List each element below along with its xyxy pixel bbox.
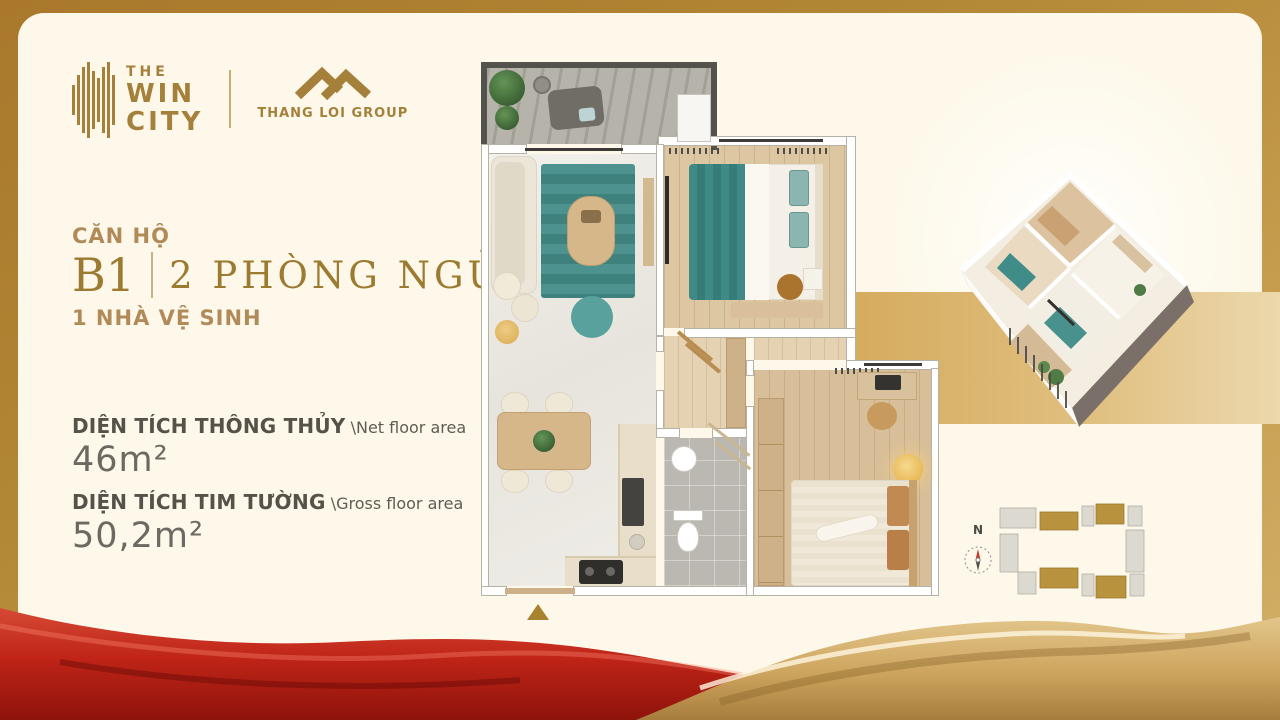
wordmark-the: THE	[126, 65, 203, 79]
logo-divider	[229, 70, 231, 128]
floor-lamp	[495, 320, 519, 344]
pouf	[571, 296, 613, 338]
balcony-plant	[495, 106, 519, 130]
gross-area-value: 50,2m²	[72, 516, 466, 556]
pillow	[789, 212, 809, 248]
pillow	[789, 170, 809, 206]
ribbon-decoration	[0, 552, 1280, 720]
unit-bedrooms: 2 PHÒNG NGỦ	[169, 257, 503, 294]
balcony-plant	[489, 70, 525, 106]
unit-code: B1	[72, 252, 135, 298]
wall	[656, 428, 680, 438]
compass-north-label: N	[973, 523, 983, 537]
wall	[746, 360, 754, 376]
unit-bathrooms: 1 NHÀ VỆ SINH	[72, 306, 503, 330]
desk-chair	[867, 402, 897, 430]
header-logos: THE WIN CITY THANG LOI GROUP	[72, 62, 408, 138]
lounge-pillow	[578, 107, 595, 122]
ac-unit	[677, 94, 711, 142]
the-win-city-logo: THE WIN CITY	[72, 62, 203, 138]
coffee-table	[567, 196, 615, 266]
toilet	[673, 510, 703, 521]
wordmark-city: CITY	[126, 109, 203, 135]
sofa-cushions	[495, 162, 525, 286]
thang-loi-wordmark: THANG LOI GROUP	[257, 106, 408, 121]
wall	[656, 336, 664, 352]
window-bedroom-1	[719, 139, 823, 142]
gross-area-label: DIỆN TÍCH TIM TƯỜNG	[72, 490, 326, 514]
area-specs: DIỆN TÍCH THÔNG THỦY \Net floor area 46m…	[72, 414, 466, 566]
curtain	[669, 148, 723, 154]
wall	[481, 62, 487, 150]
table-plant	[533, 430, 555, 452]
nightstand	[803, 268, 823, 290]
wordmark-win: WIN	[126, 81, 203, 107]
balcony-table	[533, 76, 551, 94]
tv	[665, 176, 669, 264]
gold-silk-wave	[636, 617, 1280, 720]
thang-loi-logo-mark	[295, 66, 371, 100]
lounge-chair	[547, 85, 605, 130]
floor-plan	[479, 62, 941, 602]
toilet-bowl	[677, 522, 699, 552]
window-bedroom-2	[864, 363, 922, 366]
unit-title-divider	[151, 252, 153, 298]
net-area-label: DIỆN TÍCH THÔNG THỦY	[72, 414, 345, 438]
pouf	[777, 274, 803, 300]
hallway-cabinet	[726, 338, 746, 428]
sliding-door	[525, 148, 623, 151]
bedroom-1-dresser	[731, 302, 823, 318]
room-hallway-upper	[754, 336, 846, 360]
bathroom-sink	[671, 446, 697, 472]
unit-title-row: B1 2 PHÒNG NGỦ	[72, 252, 503, 298]
dining-chair	[501, 470, 529, 493]
net-area-value: 46m²	[72, 440, 466, 480]
gross-area-sublabel: \Gross floor area	[331, 494, 464, 513]
bed-1-fold	[745, 164, 769, 300]
coffee-table-tray	[581, 210, 601, 223]
pillow	[887, 486, 909, 526]
unit-info: CĂN HỘ B1 2 PHÒNG NGỦ 1 NHÀ VỆ SINH	[72, 224, 503, 330]
dining-chair	[545, 470, 573, 493]
net-area-sublabel: \Net floor area	[351, 418, 467, 437]
gross-area-row: DIỆN TÍCH TIM TƯỜNG \Gross floor area	[72, 490, 466, 514]
fridge	[622, 478, 644, 526]
laptop	[875, 375, 901, 390]
wall	[684, 328, 856, 338]
page: THE WIN CITY THANG LOI GROUP CĂN HỘ B1 2…	[0, 0, 1280, 720]
the-win-city-wordmark: THE WIN CITY	[126, 65, 203, 135]
thang-loi-group-logo: THANG LOI GROUP	[257, 66, 408, 121]
floor-cushion	[511, 294, 539, 322]
isometric-3d-render	[952, 150, 1202, 440]
wall	[656, 144, 664, 336]
wall	[481, 62, 717, 68]
media-console	[643, 178, 654, 266]
net-area-row: DIỆN TÍCH THÔNG THỦY \Net floor area	[72, 414, 466, 438]
curtain	[777, 148, 831, 154]
unit-label: CĂN HỘ	[72, 224, 503, 248]
bed-1-blanket	[689, 164, 745, 300]
wall	[481, 144, 489, 596]
kitchen-sink	[629, 534, 645, 550]
the-win-city-logo-mark	[72, 62, 116, 138]
